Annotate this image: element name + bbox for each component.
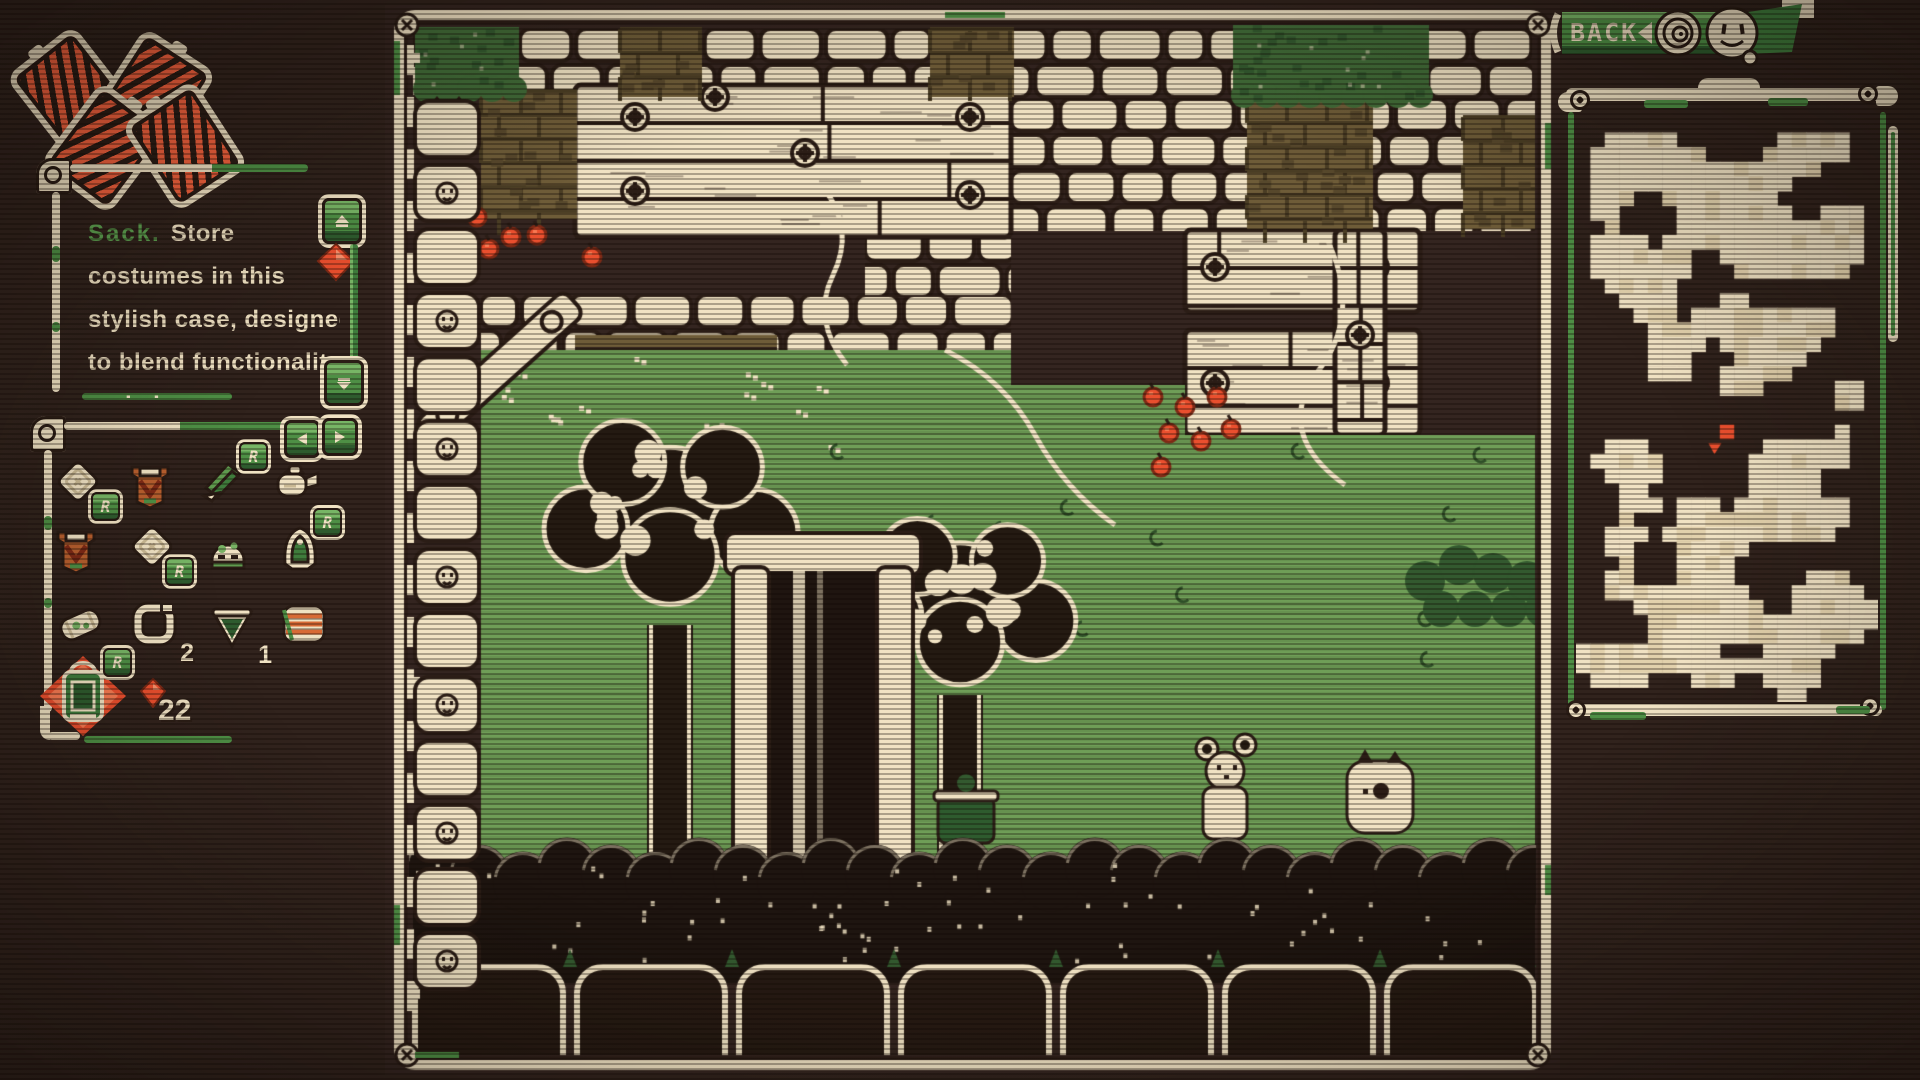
- minimap-accent: [1590, 712, 1646, 720]
- panel-border: [70, 164, 308, 172]
- minimap-canvas: [1576, 118, 1878, 702]
- map-view-canvas: [385, 5, 1560, 1075]
- inventory-item[interactable]: [200, 522, 256, 578]
- left-arrow-icon: [295, 431, 309, 447]
- tooltip-line: stylish case, designed: [88, 298, 340, 341]
- reassign-badge: R: [165, 557, 194, 586]
- inventory-next-button[interactable]: [322, 418, 358, 456]
- helmet-icon: [200, 522, 256, 578]
- back-button[interactable]: BACK: [1544, 0, 1814, 74]
- back-button-label: BACK: [1570, 18, 1638, 47]
- tooltip-line: costumes in this: [88, 255, 340, 298]
- panel-border: [44, 598, 52, 608]
- scrollbar-track[interactable]: [350, 244, 358, 364]
- inventory-item[interactable]: R: [198, 452, 254, 508]
- tooltip-line: to blend functionality: [88, 341, 340, 384]
- ring-icon: [126, 596, 182, 652]
- smiley-face-icon: [1707, 8, 1757, 65]
- minimap-frame: [1876, 86, 1898, 106]
- vest-icon: [122, 455, 178, 511]
- inventory-item[interactable]: 1: [204, 598, 260, 654]
- tooltip-line: and elegance: [88, 384, 340, 398]
- striped-vest-icon: [276, 596, 332, 652]
- panel-border: [84, 736, 232, 743]
- reassign-badge: R: [91, 492, 120, 521]
- inventory-item[interactable]: [122, 455, 178, 511]
- reassign-badge: R: [313, 508, 342, 537]
- reassign-badge: R: [103, 648, 132, 677]
- minimap-accent: [1568, 112, 1574, 710]
- panel-border: [52, 192, 60, 392]
- screw-ornament: [1570, 90, 1590, 110]
- game-screen: Sack.Store costumes in this stylish case…: [0, 0, 1920, 1080]
- inventory-item[interactable]: 2: [126, 596, 182, 652]
- minimap-accent: [1768, 98, 1808, 106]
- inventory-item[interactable]: [276, 596, 332, 652]
- minimap-accent: [1836, 706, 1870, 714]
- panel-corner-ornament: [36, 158, 72, 194]
- inventory-item[interactable]: R: [124, 520, 180, 576]
- panel-corner-ornament: [30, 416, 66, 452]
- inventory-item[interactable]: [52, 596, 108, 652]
- inventory-item[interactable]: [268, 452, 324, 508]
- tooltip-line: Store: [171, 220, 235, 247]
- currency-count: 22: [158, 694, 191, 728]
- roll-icon: [52, 596, 108, 652]
- scroll-up-button[interactable]: [322, 198, 362, 244]
- minimap-frame: [1698, 78, 1760, 96]
- bracket-ornament: [1554, 14, 1559, 52]
- minimap-accent: [1880, 112, 1886, 710]
- item-count: 1: [258, 641, 272, 670]
- screw-ornament: [1566, 700, 1586, 720]
- minimap-accent: [1891, 132, 1895, 336]
- tooltip-text: Sack.Store costumes in this stylish case…: [88, 212, 340, 398]
- minimap-accent: [1644, 100, 1688, 108]
- panel-border: [64, 422, 304, 430]
- right-arrow-icon: [333, 429, 347, 445]
- scroll-up-arrow-icon: [333, 214, 351, 229]
- panel-border: [52, 246, 60, 262]
- kettle-icon: [268, 452, 324, 508]
- spiral-icon: [1656, 11, 1700, 55]
- inventory-item-selected[interactable]: R: [40, 656, 126, 736]
- cone-icon: [204, 598, 260, 654]
- tooltip-title: Sack.: [88, 220, 161, 247]
- reassign-badge: R: [239, 442, 268, 471]
- screw-ornament: [1858, 84, 1878, 104]
- inventory-item[interactable]: [48, 520, 104, 576]
- item-count: 2: [180, 639, 194, 668]
- vest-icon: [48, 520, 104, 576]
- scroll-down-button[interactable]: [324, 360, 364, 406]
- inventory-item[interactable]: R: [50, 455, 106, 511]
- panel-border: [52, 322, 60, 332]
- scroll-down-arrow-icon: [335, 376, 353, 391]
- inventory-item[interactable]: R: [272, 518, 328, 574]
